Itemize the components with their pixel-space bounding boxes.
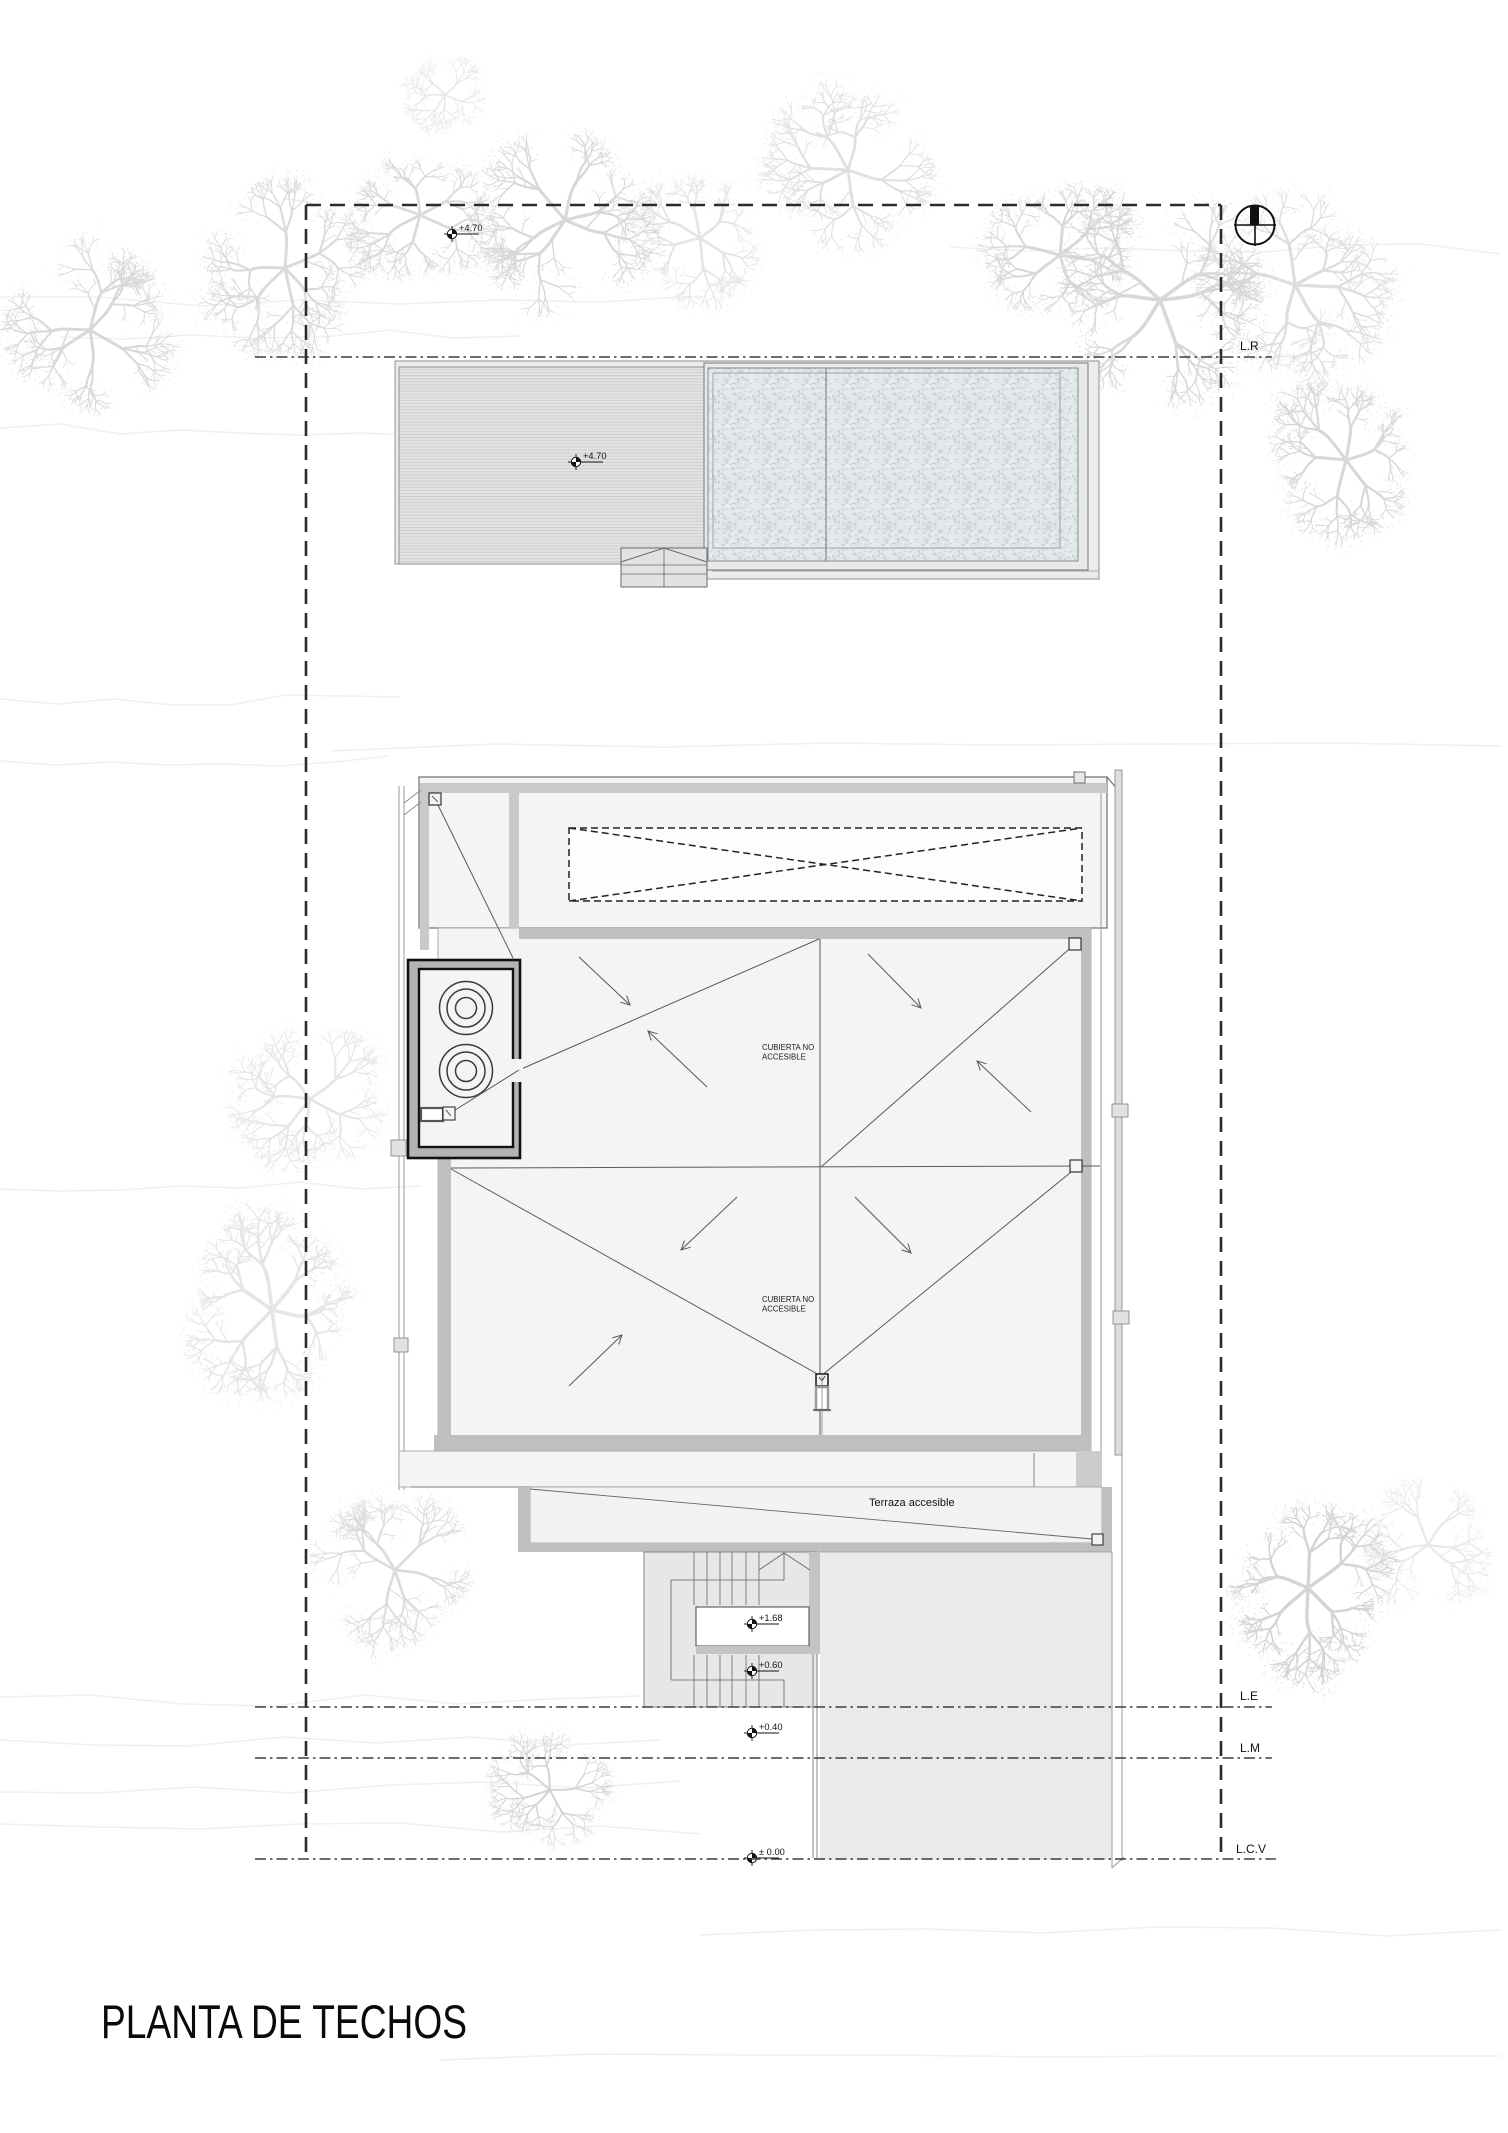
svg-text:Terraza accesible: Terraza accesible — [869, 1497, 955, 1509]
svg-text:± 0.00: ± 0.00 — [759, 1847, 785, 1857]
svg-text:CUBIERTA NO: CUBIERTA NO — [762, 1295, 814, 1304]
svg-text:+1.68: +1.68 — [759, 1613, 783, 1623]
svg-text:+4.70: +4.70 — [459, 223, 483, 233]
svg-text:+4.70: +4.70 — [583, 451, 607, 461]
svg-text:L.M: L.M — [1240, 1741, 1260, 1755]
svg-text:CUBIERTA NO: CUBIERTA NO — [762, 1043, 814, 1052]
svg-text:+0.60: +0.60 — [759, 1660, 783, 1670]
svg-text:+0.40: +0.40 — [759, 1722, 783, 1732]
svg-text:L.E: L.E — [1240, 1689, 1258, 1703]
svg-text:ACCESIBLE: ACCESIBLE — [762, 1305, 806, 1314]
svg-text:L.C.V: L.C.V — [1236, 1842, 1266, 1856]
svg-text:L.R: L.R — [1240, 339, 1259, 353]
svg-text:ACCESIBLE: ACCESIBLE — [762, 1053, 806, 1062]
svg-text:PLANTA DE TECHOS: PLANTA DE TECHOS — [101, 1995, 467, 2048]
